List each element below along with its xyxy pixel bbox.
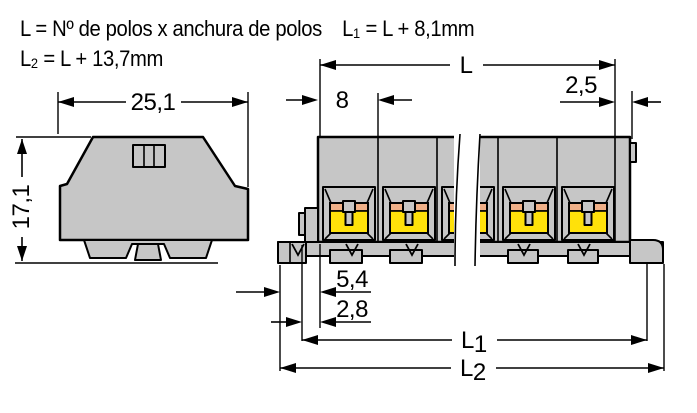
end-plate-tab — [630, 143, 636, 162]
front-marking-field — [133, 145, 165, 167]
formula-l2: L2 = L + 13,7mm — [20, 46, 474, 76]
dimension-pole-pitch: 8 — [286, 87, 412, 136]
technical-drawing: L = Nº de polos x anchura de polosL1 = L… — [0, 0, 697, 413]
formula-line-1: L = Nº de polos x anchura de polosL1 = L… — [20, 16, 474, 46]
clamp-window-2 — [383, 187, 435, 240]
clamp-window-4 — [503, 187, 555, 240]
front-foot-tongue — [135, 244, 161, 260]
formula-l1: L1 = L + 8,1mm — [342, 16, 474, 41]
label-front-height: 17,1 — [8, 184, 35, 229]
left-flange-step — [299, 213, 305, 235]
label-end-plate: 2,5 — [565, 72, 597, 99]
dimension-rail-foot-offset: 5,4 — [236, 266, 371, 297]
label-pole-pitch: 8 — [336, 87, 349, 114]
label-rail-notch-offset: 2,8 — [336, 296, 368, 323]
label-length-l1: L1 — [461, 327, 487, 358]
dimension-length-l1: L1 — [302, 327, 647, 358]
dimension-end-plate: 2,5 — [560, 72, 661, 139]
front-view: 25,1 17,1 — [8, 89, 248, 263]
side-view: L 8 2,5 — [236, 52, 664, 386]
formula-header: L = Nº de polos x anchura de polosL1 = L… — [20, 16, 474, 76]
clamp-window-1 — [323, 187, 375, 240]
left-flange — [305, 208, 318, 242]
rail-base-right-foot — [630, 240, 663, 263]
label-length-l2: L2 — [460, 355, 486, 386]
label-rail-foot-offset: 5,4 — [336, 266, 368, 293]
formula-total-length: L = Nº de polos x anchura de polos — [20, 16, 322, 41]
label-front-width: 25,1 — [131, 89, 176, 116]
clamp-window-5 — [562, 187, 614, 240]
dimension-length-l2: L2 — [280, 355, 664, 386]
dimension-rail-notch-offset: 2,8 — [271, 296, 371, 327]
